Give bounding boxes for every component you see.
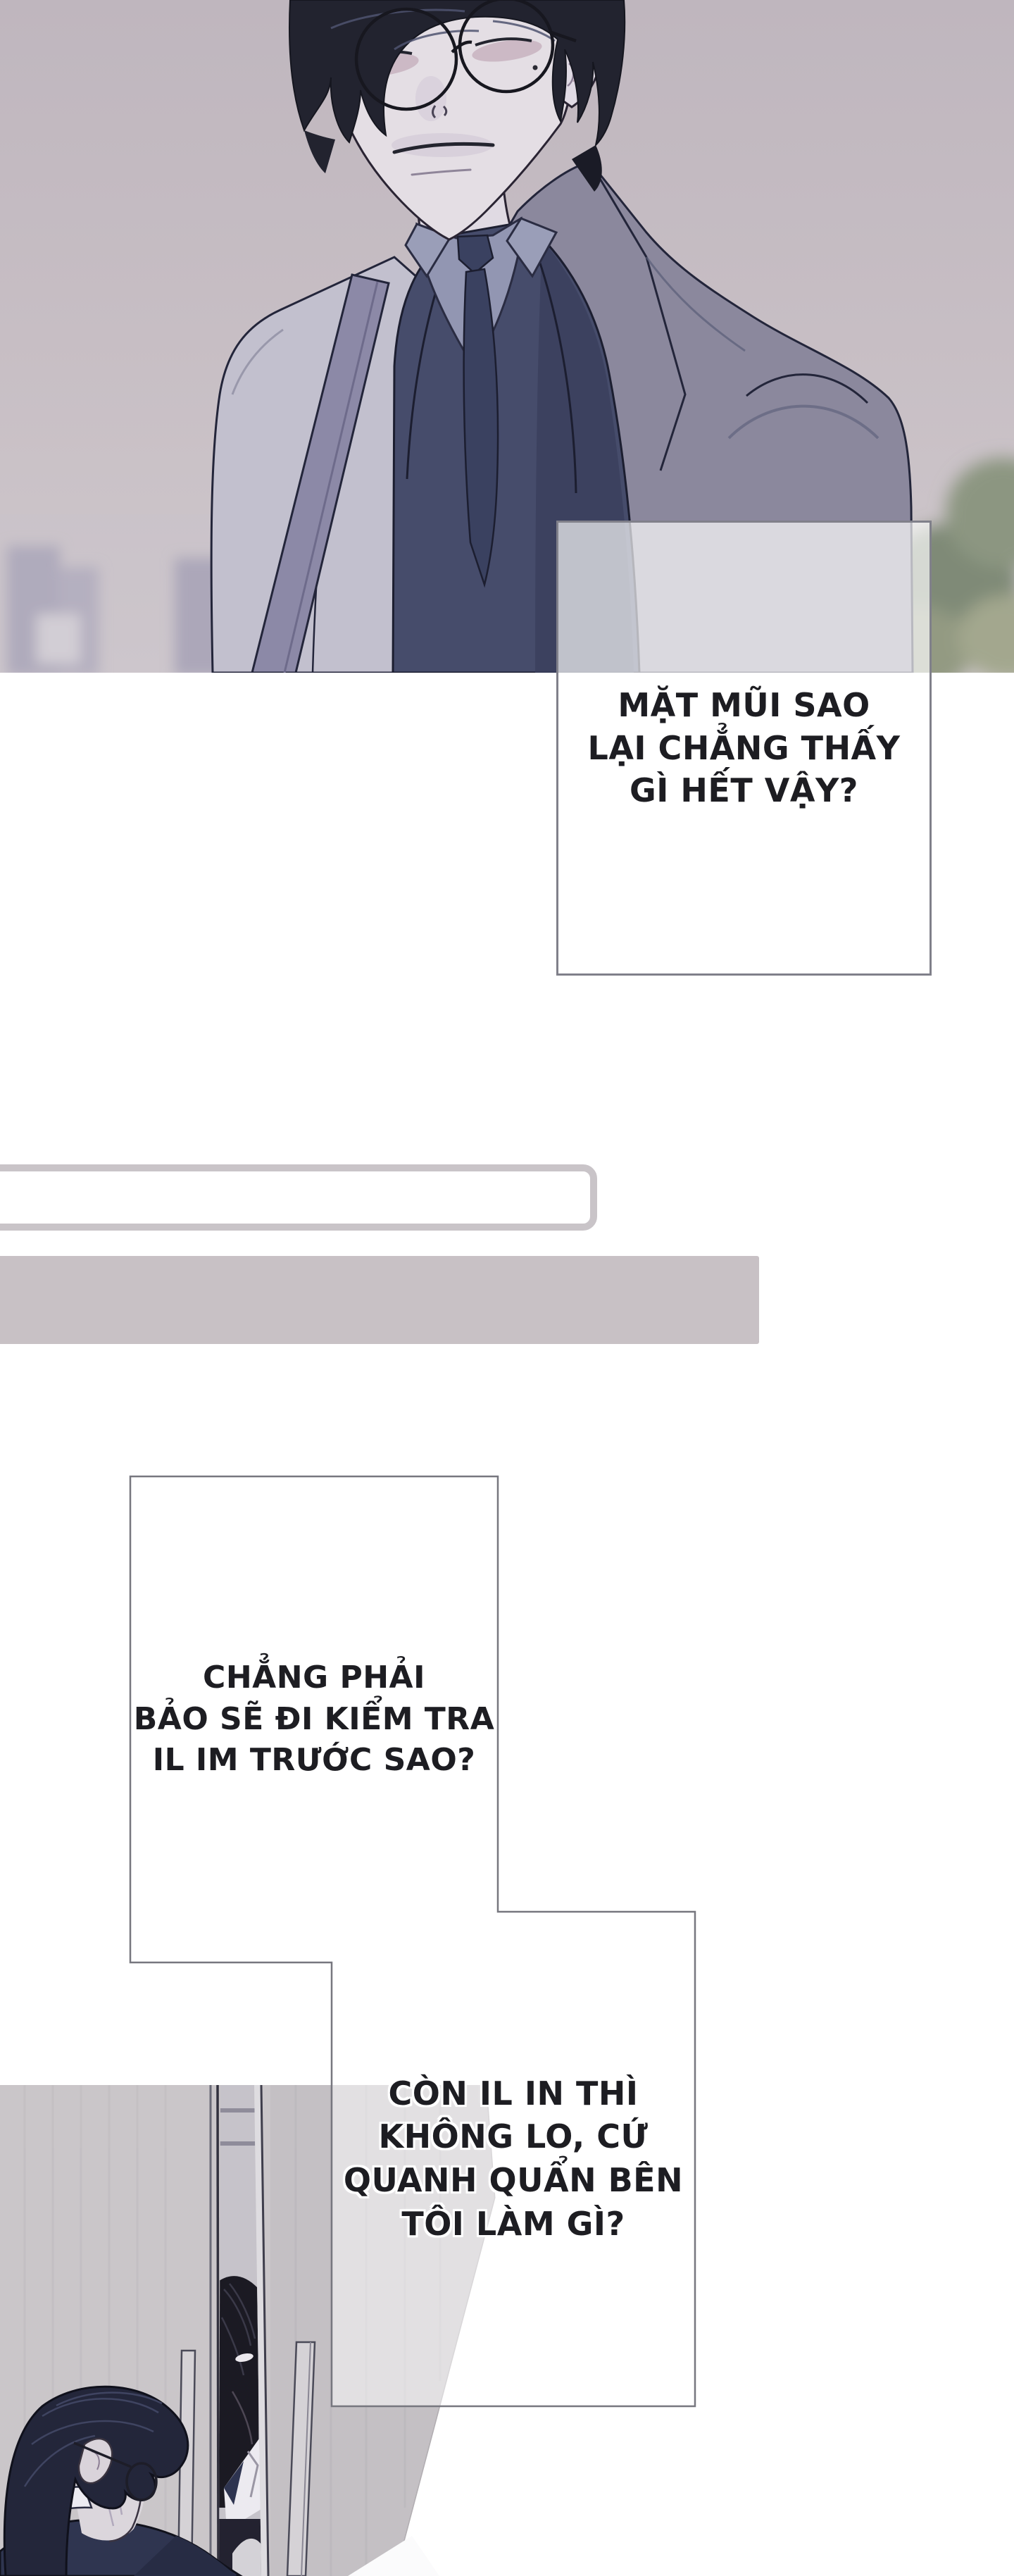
comic-page: MẶT MŨI SAO LẠI CHẲNG THẤY GÌ HẾT VẬY? xyxy=(0,0,1014,2576)
speech-bubble-1-text: MẶT MŨI SAO LẠI CHẲNG THẤY GÌ HẾT VẬY? xyxy=(588,684,901,812)
speech-bubble-3-text: CÒN IL IN THÌ KHÔNG LO, CỨ QUANH QUẨN BÊ… xyxy=(344,2072,683,2246)
speech-bubble-3: CÒN IL IN THÌ KHÔNG LO, CỨ QUANH QUẨN BÊ… xyxy=(332,1912,695,2406)
speech-bubble-2: CHẲNG PHẢI BẢO SẼ ĐI KIỂM TRA IL IM TRƯỚ… xyxy=(130,1476,498,1962)
peeking-man xyxy=(217,2276,263,2576)
speech-bubble-1: MẶT MŨI SAO LẠI CHẲNG THẤY GÌ HẾT VẬY? xyxy=(556,521,932,976)
speech-bubble-2-text: CHẲNG PHẢI BẢO SẼ ĐI KIỂM TRA IL IM TRƯỚ… xyxy=(134,1657,495,1782)
divider-bar xyxy=(0,1256,759,1344)
empty-caption-box xyxy=(0,1164,597,1231)
mole xyxy=(533,66,538,70)
